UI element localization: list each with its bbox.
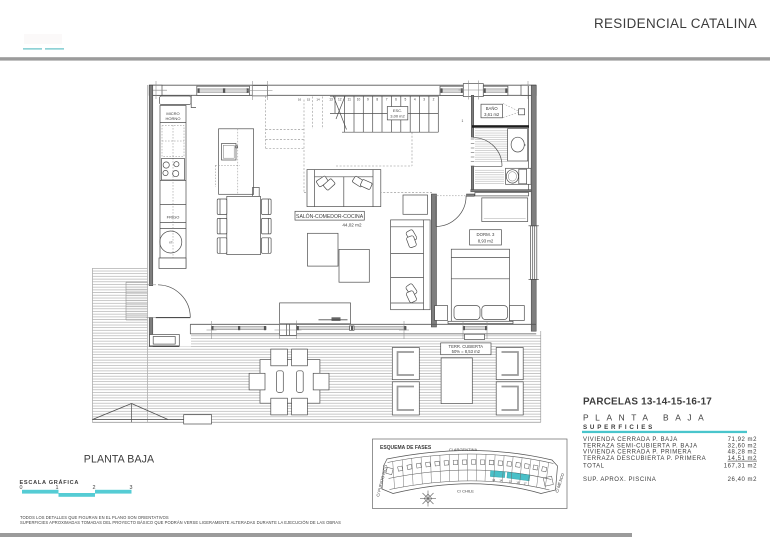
svg-text:SUP. APROX. PISCINA: SUP. APROX. PISCINA [583, 477, 656, 483]
svg-text:15: 15 [307, 97, 311, 101]
svg-text:TOTAL: TOTAL [583, 463, 605, 469]
svg-text:PLANTA BAJA: PLANTA BAJA [583, 413, 710, 423]
svg-text:13: 13 [329, 98, 333, 102]
svg-text:SUPERFICIES APROXIMADAS TOMADA: SUPERFICIES APROXIMADAS TOMADAS DEL PROY… [20, 520, 341, 525]
svg-text:RESIDENCIAL CATALINA: RESIDENCIAL CATALINA [594, 16, 757, 31]
svg-text:8,93 m2: 8,93 m2 [478, 238, 494, 243]
svg-text:XT: XT [169, 241, 173, 245]
svg-text:32,60 m2: 32,60 m2 [728, 443, 758, 449]
svg-text:C/ ARGENTINA: C/ ARGENTINA [449, 447, 478, 452]
svg-text:11: 11 [348, 98, 352, 102]
svg-text:HORNO: HORNO [166, 116, 181, 121]
svg-text:ESQUEMA DE FASES: ESQUEMA DE FASES [380, 445, 432, 451]
svg-text:14,51 m2: 14,51 m2 [728, 456, 758, 462]
svg-text:2: 2 [433, 98, 435, 102]
svg-text:5: 5 [405, 98, 407, 102]
svg-text:C/ CHILE: C/ CHILE [457, 489, 474, 494]
svg-text:ESCALA GRÁFICA: ESCALA GRÁFICA [20, 479, 80, 486]
svg-text:SALÓN-COMEDOR-COCINA: SALÓN-COMEDOR-COCINA [296, 213, 364, 220]
svg-text:VIVIENDA CERRADA P. PRIMERA: VIVIENDA CERRADA P. PRIMERA [583, 450, 692, 456]
svg-text:FRIGO: FRIGO [167, 215, 180, 220]
svg-text:TERR. CUBIERTA: TERR. CUBIERTA [449, 344, 484, 349]
svg-text:ESC.: ESC. [393, 108, 402, 113]
svg-text:TERRAZA DESCUBIERTA P. PRIMERA: TERRAZA DESCUBIERTA P. PRIMERA [583, 456, 706, 462]
svg-text:3,61 m2: 3,61 m2 [484, 112, 500, 117]
svg-text:167,31 m2: 167,31 m2 [724, 463, 757, 469]
svg-text:16: 16 [298, 97, 302, 101]
svg-text:DORM. 3: DORM. 3 [477, 232, 496, 237]
svg-text:10: 10 [357, 98, 361, 102]
svg-text:3,00 m2: 3,00 m2 [390, 114, 405, 119]
svg-text:26,40 m2: 26,40 m2 [728, 477, 758, 483]
svg-text:71,92 m2: 71,92 m2 [728, 437, 758, 443]
svg-text:48,28 m2: 48,28 m2 [728, 450, 758, 456]
svg-text:SUPERFICIES: SUPERFICIES [583, 424, 655, 431]
svg-text:1: 1 [462, 119, 464, 123]
svg-text:6: 6 [395, 98, 397, 102]
svg-text:7: 7 [386, 98, 388, 102]
svg-text:12: 12 [338, 98, 342, 102]
svg-text:PARCELAS 13-14-15-16-17: PARCELAS 13-14-15-16-17 [583, 396, 712, 407]
svg-text:8: 8 [376, 98, 378, 102]
svg-text:9: 9 [367, 98, 369, 102]
svg-text:TERRAZA SEMI-CUBIERTA P. BAJA: TERRAZA SEMI-CUBIERTA P. BAJA [583, 443, 698, 449]
svg-text:3: 3 [423, 98, 425, 102]
svg-text:VIVIENDA CERRADA P. BAJA: VIVIENDA CERRADA P. BAJA [583, 437, 678, 443]
svg-text:PLANTA BAJA: PLANTA BAJA [84, 454, 155, 466]
svg-text:4: 4 [414, 98, 416, 102]
svg-text:50% = 8,53 m2: 50% = 8,53 m2 [452, 349, 481, 354]
svg-text:BAÑO: BAÑO [486, 106, 499, 111]
svg-text:44,02 m2: 44,02 m2 [342, 222, 362, 227]
svg-text:14: 14 [316, 97, 320, 101]
